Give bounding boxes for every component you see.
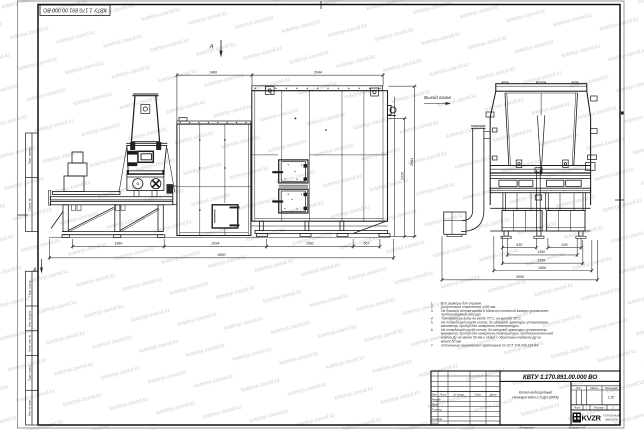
- svg-text:630: 630: [516, 243, 522, 247]
- svg-text:Подп.: Подп.: [475, 392, 482, 396]
- svg-text:567: 567: [364, 242, 371, 246]
- svg-text:Инв. № подл.: Инв. № подл.: [28, 399, 32, 416]
- svg-text:1906: 1906: [538, 266, 546, 270]
- svg-text:Неохарт-КВт-2.0-ДО-(ВПА): Неохарт-КВт-2.0-ДО-(ВПА): [512, 396, 558, 400]
- svg-text:Выход газов: Выход газов: [424, 95, 451, 100]
- svg-text:КВТУ 1.170.891.00.000 ВО: КВТУ 1.170.891.00.000 ВО: [523, 374, 597, 381]
- svg-text:Утв.: Утв.: [432, 422, 438, 426]
- svg-text:Н.контр.: Н.контр.: [432, 417, 443, 421]
- svg-text:КВТУ 1.170.891.00.000 ВО: КВТУ 1.170.891.00.000 ВО: [43, 6, 106, 12]
- svg-text:А: А: [209, 45, 214, 51]
- svg-text:2335: 2335: [400, 172, 404, 181]
- svg-text:1538: 1538: [537, 258, 545, 262]
- svg-text:7.: 7.: [431, 344, 434, 348]
- svg-text:№ докум.: № докум.: [453, 392, 465, 396]
- svg-text:ЗАВОД РФ: ЗАВОД РФ: [605, 418, 618, 422]
- svg-text:1692: 1692: [306, 242, 314, 246]
- svg-text:Лит.: Лит.: [575, 386, 582, 390]
- svg-text:6800: 6800: [218, 253, 226, 257]
- svg-text:Масштаб: Масштаб: [605, 386, 618, 390]
- svg-text:Лист: Лист: [573, 406, 582, 410]
- svg-text:КОТЕЛЬНЫЙ: КОТЕЛЬНЫЙ: [603, 414, 619, 418]
- svg-text:Подп. и дата: Подп. и дата: [28, 365, 32, 381]
- svg-text:Дата: Дата: [489, 392, 497, 396]
- svg-text:Инв. № дубл.: Инв. № дубл.: [28, 310, 32, 327]
- svg-text:1960: 1960: [114, 242, 122, 246]
- svg-text:3.: 3.: [431, 309, 434, 313]
- svg-text:KVZR: KVZR: [582, 413, 602, 422]
- svg-text:Перв. примен.: Перв. примен.: [28, 146, 32, 164]
- svg-text:Масса: Масса: [590, 386, 598, 390]
- svg-text:Листов: Листов: [593, 406, 604, 410]
- svg-text:Взам. инв. №: Взам. инв. №: [28, 335, 32, 352]
- svg-text:Справ. №: Справ. №: [28, 198, 32, 210]
- svg-text:Подп. и дата: Подп. и дата: [28, 280, 32, 296]
- svg-text:Пров.: Пров.: [432, 402, 439, 406]
- svg-text:6.: 6.: [431, 328, 434, 332]
- svg-text:2034: 2034: [210, 242, 219, 246]
- svg-text:А: А: [32, 268, 37, 274]
- svg-text:Разраб.: Разраб.: [432, 397, 442, 401]
- svg-text:Т.контр.: Т.контр.: [432, 407, 443, 411]
- svg-text:1486: 1486: [209, 71, 217, 75]
- svg-text:1360: 1360: [537, 250, 545, 254]
- svg-text:Котел водогрейный: Котел водогрейный: [519, 390, 552, 394]
- svg-text:Изм.: Изм.: [432, 392, 438, 396]
- svg-text:Остальные технические требован: Остальные технические требования по ОСТ …: [441, 344, 539, 348]
- svg-text:630: 630: [562, 243, 568, 247]
- svg-text:1:20: 1:20: [608, 396, 615, 400]
- svg-text:3050: 3050: [516, 275, 524, 279]
- svg-text:2904: 2904: [410, 158, 414, 167]
- svg-text:5.: 5.: [431, 320, 434, 324]
- svg-text:Лист: Лист: [439, 392, 448, 396]
- svg-text:Формат А2: Формат А2: [569, 425, 586, 429]
- svg-text:2644: 2644: [313, 71, 322, 75]
- svg-text:Копировал: Копировал: [520, 425, 535, 429]
